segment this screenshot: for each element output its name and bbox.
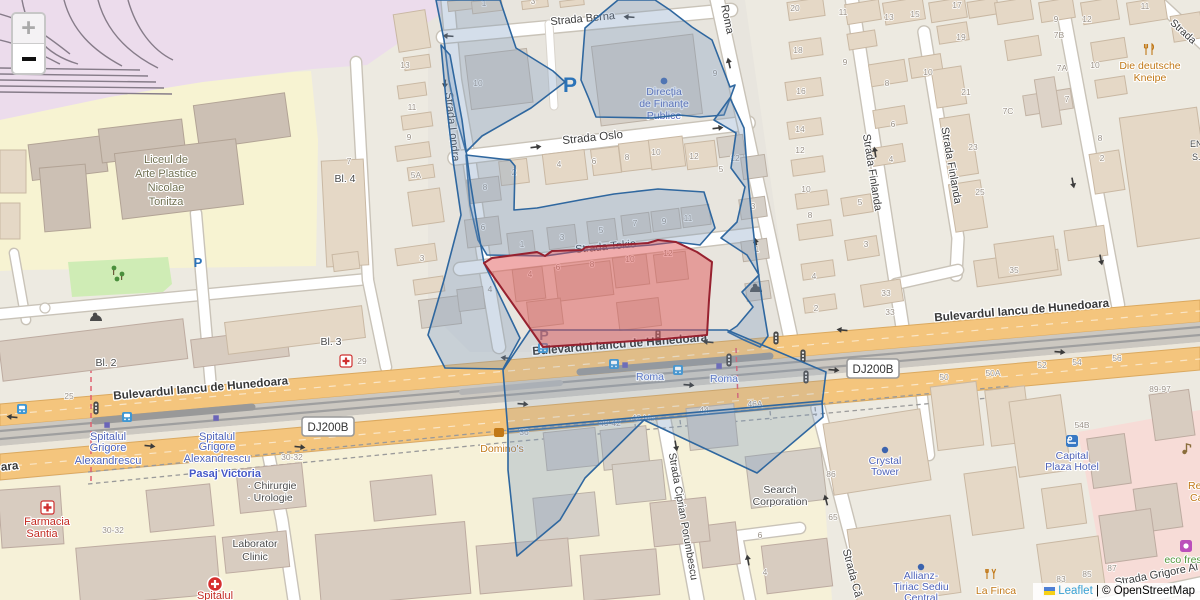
svg-text:21: 21: [961, 87, 971, 97]
svg-text:7C: 7C: [1003, 106, 1014, 116]
svg-text:65: 65: [828, 512, 838, 522]
svg-text:8: 8: [1098, 133, 1103, 143]
svg-text:52: 52: [1037, 360, 1047, 370]
svg-text:Central: Central: [904, 592, 938, 600]
svg-text:85: 85: [1082, 569, 1092, 579]
svg-text:3: 3: [531, 0, 536, 6]
svg-text:10: 10: [801, 184, 811, 194]
svg-text:17: 17: [952, 0, 962, 10]
svg-text:Tower: Tower: [871, 466, 900, 478]
svg-text:2: 2: [814, 303, 819, 313]
svg-text:29: 29: [357, 356, 367, 366]
svg-text:7B: 7B: [1054, 30, 1065, 40]
svg-text:Grigore: Grigore: [199, 441, 236, 453]
svg-text:3: 3: [420, 253, 425, 263]
svg-text:18: 18: [793, 45, 803, 55]
svg-text:P: P: [194, 255, 203, 270]
svg-text:13: 13: [884, 12, 894, 22]
svg-text:10: 10: [651, 147, 661, 157]
svg-text:30-32: 30-32: [281, 452, 303, 462]
svg-text:Liceul de: Liceul de: [144, 154, 188, 166]
svg-text:Bl. 3: Bl. 3: [320, 336, 341, 348]
svg-text:10: 10: [923, 67, 933, 77]
svg-text:eco fres: eco fres: [1164, 554, 1200, 566]
svg-text:DJ200B: DJ200B: [853, 364, 894, 376]
svg-text:Kneipe: Kneipe: [1134, 72, 1167, 84]
svg-text:10: 10: [1090, 60, 1100, 70]
svg-text:7A: 7A: [1057, 63, 1068, 73]
svg-text:8: 8: [808, 210, 813, 220]
svg-text:30-32: 30-32: [102, 525, 124, 535]
svg-text:ara: ara: [0, 459, 19, 474]
svg-text:11: 11: [839, 7, 848, 17]
svg-text:S.: S.: [1192, 152, 1200, 162]
svg-text:Plaza Hotel: Plaza Hotel: [1045, 461, 1099, 473]
svg-text:La Finca: La Finca: [976, 585, 1016, 597]
svg-text:6: 6: [891, 119, 896, 129]
svg-text:11: 11: [408, 102, 417, 112]
svg-text:DJ200B: DJ200B: [308, 422, 349, 434]
svg-text:Bl. 2: Bl. 2: [95, 357, 116, 369]
svg-text:Ca: Ca: [1190, 492, 1200, 504]
svg-text:54: 54: [1072, 357, 1082, 367]
svg-text:7: 7: [1065, 94, 1070, 104]
svg-text:5A: 5A: [411, 170, 422, 180]
svg-text:25: 25: [975, 187, 985, 197]
svg-text:Corporation: Corporation: [753, 496, 808, 508]
svg-text:13: 13: [400, 60, 410, 70]
svg-text:35: 35: [1009, 265, 1019, 275]
svg-text:P: P: [563, 74, 577, 97]
svg-text:Pasaj Victoria: Pasaj Victoria: [189, 468, 262, 480]
svg-text:12: 12: [1082, 14, 1092, 24]
svg-text:11: 11: [1141, 1, 1150, 11]
svg-text:20: 20: [790, 3, 800, 13]
svg-text:87: 87: [1107, 563, 1117, 573]
svg-text:6: 6: [758, 530, 763, 540]
svg-text:Die deutsche: Die deutsche: [1119, 60, 1180, 72]
svg-text:4: 4: [812, 271, 817, 281]
svg-text:Alexandrescu: Alexandrescu: [184, 453, 251, 465]
svg-text:16: 16: [796, 86, 806, 96]
svg-text:Clinic: Clinic: [242, 551, 268, 563]
svg-text:33: 33: [881, 288, 891, 298]
svg-text:· Urologie: · Urologie: [247, 492, 293, 504]
svg-text:Tonitza: Tonitza: [149, 196, 185, 208]
svg-text:4: 4: [763, 567, 768, 577]
svg-text:7: 7: [347, 156, 352, 166]
svg-text:56: 56: [1112, 353, 1122, 363]
svg-text:Santia: Santia: [26, 528, 58, 540]
svg-text:15: 15: [910, 9, 920, 19]
svg-text:19: 19: [956, 32, 966, 42]
svg-text:Search: Search: [763, 484, 796, 496]
svg-text:Grigore: Grigore: [90, 442, 127, 454]
svg-text:5: 5: [719, 164, 724, 174]
svg-text:5: 5: [858, 197, 863, 207]
svg-text:50: 50: [939, 372, 949, 382]
svg-text:50A: 50A: [985, 368, 1000, 378]
svg-text:Laborator: Laborator: [233, 538, 278, 550]
svg-text:Spitalul: Spitalul: [197, 590, 233, 600]
svg-text:4: 4: [557, 159, 562, 169]
svg-text:4: 4: [889, 154, 894, 164]
svg-text:14: 14: [795, 124, 805, 134]
svg-text:12: 12: [795, 145, 805, 155]
svg-text:86: 86: [826, 469, 836, 479]
svg-text:2: 2: [1100, 153, 1105, 163]
svg-text:8: 8: [625, 152, 630, 162]
svg-text:33: 33: [885, 307, 895, 317]
svg-text:Nicolae: Nicolae: [148, 182, 185, 194]
svg-text:6: 6: [592, 156, 597, 166]
svg-text:54B: 54B: [1074, 420, 1089, 430]
svg-text:Arte Plastice: Arte Plastice: [135, 168, 197, 180]
svg-text:Alexandrescu: Alexandrescu: [75, 455, 142, 467]
svg-text:12: 12: [689, 151, 699, 161]
svg-text:EN: EN: [1190, 139, 1200, 149]
svg-text:25: 25: [64, 391, 74, 401]
svg-text:9: 9: [407, 132, 412, 142]
svg-text:89-97: 89-97: [1149, 384, 1171, 394]
svg-text:Rea: Rea: [1188, 480, 1200, 492]
svg-text:8: 8: [885, 78, 890, 88]
svg-text:Farmacia: Farmacia: [24, 516, 71, 528]
svg-text:Bl. 4: Bl. 4: [334, 173, 355, 185]
svg-text:· Chirurgie: · Chirurgie: [247, 480, 296, 492]
svg-text:23: 23: [968, 142, 978, 152]
svg-text:3: 3: [864, 239, 869, 249]
svg-text:9: 9: [1054, 14, 1059, 24]
svg-text:9: 9: [843, 57, 848, 67]
